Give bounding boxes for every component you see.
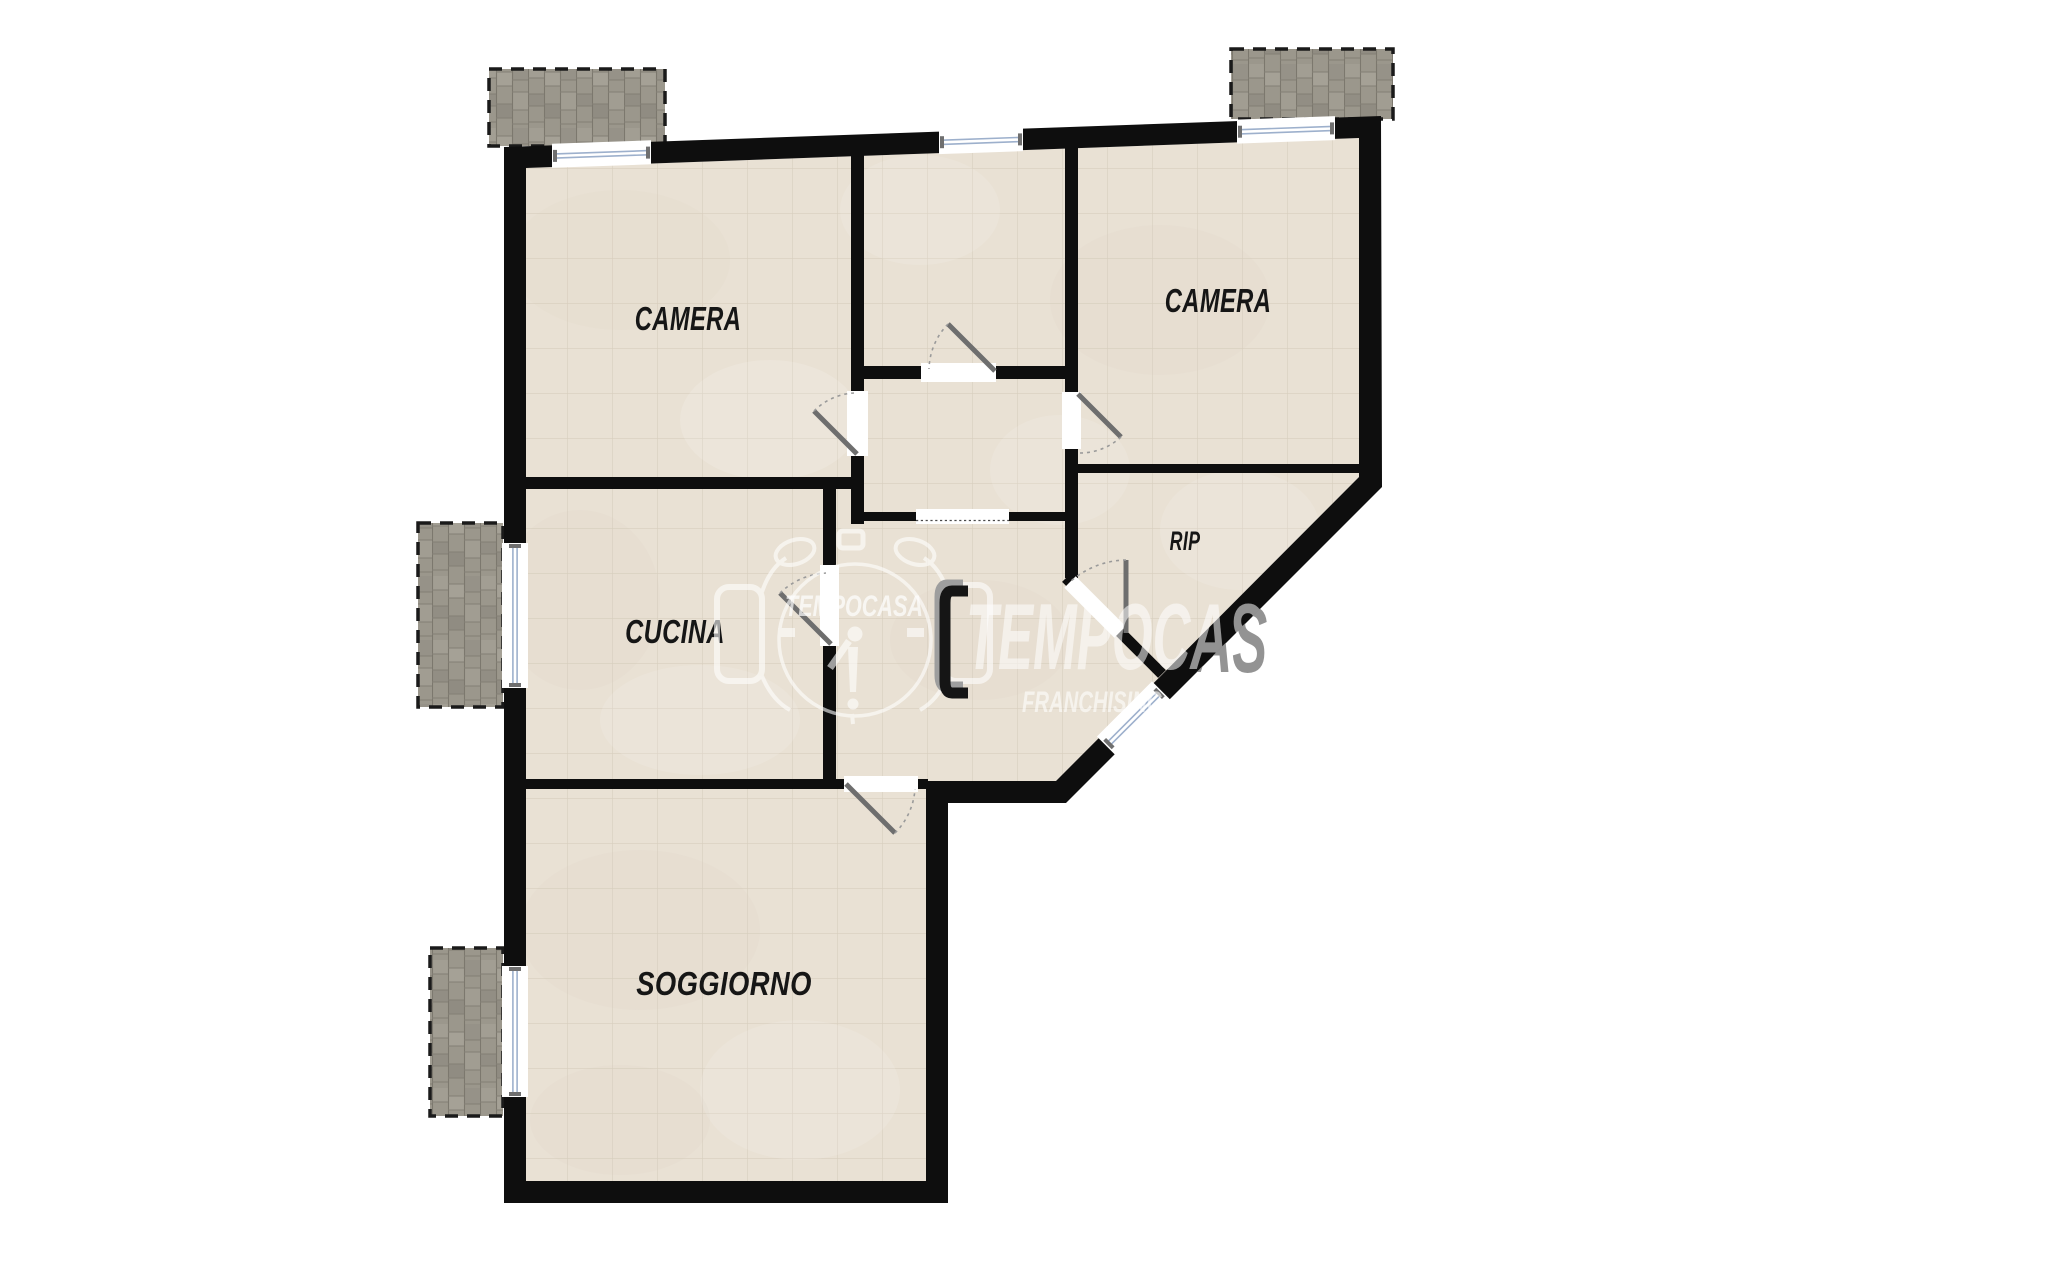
svg-text:RIP: RIP [1170,525,1201,556]
svg-text:SOGGIORNO: SOGGIORNO [636,967,812,1003]
svg-text:TEMPOCASA: TEMPOCASA [785,588,923,622]
svg-text:FRANCHISING: FRANCHISING [1022,686,1163,719]
svg-text:CAMERA: CAMERA [1165,283,1271,320]
svg-text:CAMERA: CAMERA [635,301,741,338]
svg-text:CUCINA: CUCINA [625,614,725,651]
